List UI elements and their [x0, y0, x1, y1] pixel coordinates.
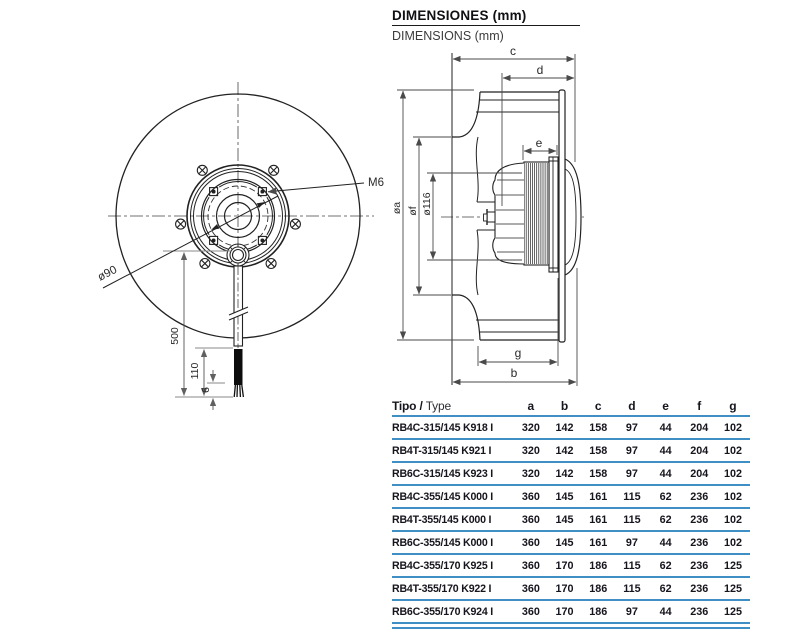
cell-value: 115 [615, 491, 649, 503]
cell-value: 102 [716, 491, 750, 503]
side-view-drawing: c d e g b øa øf ø116 [391, 44, 584, 386]
dim-label-da: øa [391, 202, 403, 214]
type-label-bold: Tipo / [392, 399, 423, 413]
cell-value: 360 [514, 514, 548, 526]
cell-type: RB4C-355/145 K000 I [392, 491, 514, 503]
cell-type: RB4C-355/170 K925 I [392, 560, 514, 572]
cell-value: 360 [514, 537, 548, 549]
cell-value: 186 [581, 606, 615, 618]
cell-value: 44 [649, 606, 683, 618]
dim-label-500: 500 [169, 327, 181, 345]
cell-value: 142 [548, 445, 582, 457]
dim-label-b: b [511, 366, 518, 380]
cell-value: 62 [649, 491, 683, 503]
cell-type: RB6C-355/145 K000 I [392, 537, 514, 549]
title-block: DIMENSIONES (mm) DIMENSIONS (mm) [392, 8, 752, 43]
cell-value: 102 [716, 468, 750, 480]
front-view-drawing: 500 110 6 ø90 M6 [96, 82, 384, 410]
cell-value: 115 [615, 560, 649, 572]
column-header-c: c [581, 399, 615, 413]
cell-value: 236 [682, 583, 716, 595]
hub-dome [565, 159, 581, 275]
cell-value: 97 [615, 537, 649, 549]
cell-value: 170 [548, 560, 582, 572]
page-subtitle: DIMENSIONS (mm) [392, 29, 752, 43]
table-row: RB6C-315/145 K923 I3201421589744204102 [392, 463, 750, 486]
cell-value: 62 [649, 560, 683, 572]
dim-label-g: g [515, 346, 522, 360]
cell-value: 236 [682, 491, 716, 503]
column-header-type: Tipo / Type [392, 399, 514, 413]
cell-type: RB6C-315/145 K923 I [392, 468, 514, 480]
cell-value: 125 [716, 583, 750, 595]
cell-value: 161 [581, 537, 615, 549]
cell-type: RB4T-315/145 K921 I [392, 445, 514, 457]
cell-value: 62 [649, 514, 683, 526]
cell-value: 320 [514, 468, 548, 480]
cell-type: RB4T-355/170 K922 I [392, 583, 514, 595]
dim-label-c: c [510, 44, 516, 58]
cell-value: 97 [615, 445, 649, 457]
cell-value: 145 [548, 491, 582, 503]
cell-value: 320 [514, 445, 548, 457]
cell-value: 158 [581, 468, 615, 480]
cell-value: 236 [682, 537, 716, 549]
cell-value: 62 [649, 583, 683, 595]
type-label-regular: Type [426, 399, 451, 413]
column-header-e: e [649, 399, 683, 413]
cell-value: 320 [514, 422, 548, 434]
cell-value: 360 [514, 560, 548, 572]
cell-value: 186 [581, 560, 615, 572]
cell-value: 158 [581, 422, 615, 434]
cell-value: 44 [649, 468, 683, 480]
motor-stator [493, 163, 524, 264]
cell-value: 44 [649, 537, 683, 549]
cell-type: RB4C-315/145 K918 I [392, 422, 514, 434]
table-row: RB6C-355/145 K000 I3601451619744236102 [392, 532, 750, 555]
page-title: DIMENSIONES (mm) [392, 8, 752, 23]
cell-value: 102 [716, 422, 750, 434]
table-row: RB6C-355/170 K924 I3601701869744236125 [392, 601, 750, 624]
column-header-a: a [514, 399, 548, 413]
cell-value: 360 [514, 491, 548, 503]
table-row: RB4T-355/145 K000 I36014516111562236102 [392, 509, 750, 532]
cell-value: 125 [716, 560, 750, 572]
dim-label-6: 6 [200, 387, 212, 393]
table-body: RB4C-315/145 K918 I3201421589744204102RB… [392, 417, 750, 624]
cell-value: 236 [682, 514, 716, 526]
table-row: RB4C-315/145 K918 I3201421589744204102 [392, 417, 750, 440]
column-header-g: g [716, 399, 750, 413]
cell-value: 102 [716, 537, 750, 549]
cell-value: 204 [682, 468, 716, 480]
cell-value: 161 [581, 514, 615, 526]
dim-label-110: 110 [189, 362, 201, 379]
leader-m6 [268, 183, 364, 192]
dim-label-df: øf [407, 206, 419, 215]
column-header-f: f [682, 399, 716, 413]
cell-value: 236 [682, 560, 716, 572]
cell-value: 170 [548, 583, 582, 595]
cell-value: 142 [548, 468, 582, 480]
cell-value: 115 [615, 514, 649, 526]
title-rule [392, 25, 580, 26]
cell-value: 125 [716, 606, 750, 618]
cell-value: 170 [548, 606, 582, 618]
cell-value: 145 [548, 537, 582, 549]
dim-label-d116: ø116 [421, 192, 433, 215]
cell-value: 102 [716, 445, 750, 457]
cell-value: 44 [649, 422, 683, 434]
cell-value: 158 [581, 445, 615, 457]
cell-value: 161 [581, 491, 615, 503]
cell-value: 360 [514, 606, 548, 618]
column-header-b: b [548, 399, 582, 413]
impeller-back-plate [559, 90, 565, 342]
table-row: RB4C-355/170 K925 I36017018611562236125 [392, 555, 750, 578]
cell-value: 145 [548, 514, 582, 526]
cable-end [234, 349, 243, 385]
cell-value: 44 [649, 445, 683, 457]
motor-flange [549, 157, 558, 272]
table-row: RB4T-315/145 K921 I3201421589744204102 [392, 440, 750, 463]
dim-label-e: e [536, 136, 543, 150]
cable-wires [234, 385, 243, 397]
cell-value: 102 [716, 514, 750, 526]
dimensions-table: Tipo / Type abcdefg RB4C-315/145 K918 I3… [392, 396, 750, 629]
cell-value: 204 [682, 445, 716, 457]
cell-type: RB4T-355/145 K000 I [392, 514, 514, 526]
cell-value: 142 [548, 422, 582, 434]
cell-value: 97 [615, 606, 649, 618]
cell-value: 186 [581, 583, 615, 595]
dim-label-d90: ø90 [96, 264, 119, 284]
dim-label-d: d [537, 63, 544, 77]
cell-value: 236 [682, 606, 716, 618]
table-row: RB4T-355/170 K922 I36017018611562236125 [392, 578, 750, 601]
table-row: RB4C-355/145 K000 I36014516111562236102 [392, 486, 750, 509]
cable-gland [227, 244, 249, 266]
cell-value: 97 [615, 422, 649, 434]
column-header-d: d [615, 399, 649, 413]
table-header-row: Tipo / Type abcdefg [392, 396, 750, 417]
dim-label-m6: M6 [368, 177, 384, 189]
cell-value: 115 [615, 583, 649, 595]
cell-type: RB6C-355/170 K924 I [392, 606, 514, 618]
cell-value: 360 [514, 583, 548, 595]
cell-value: 97 [615, 468, 649, 480]
cell-value: 204 [682, 422, 716, 434]
